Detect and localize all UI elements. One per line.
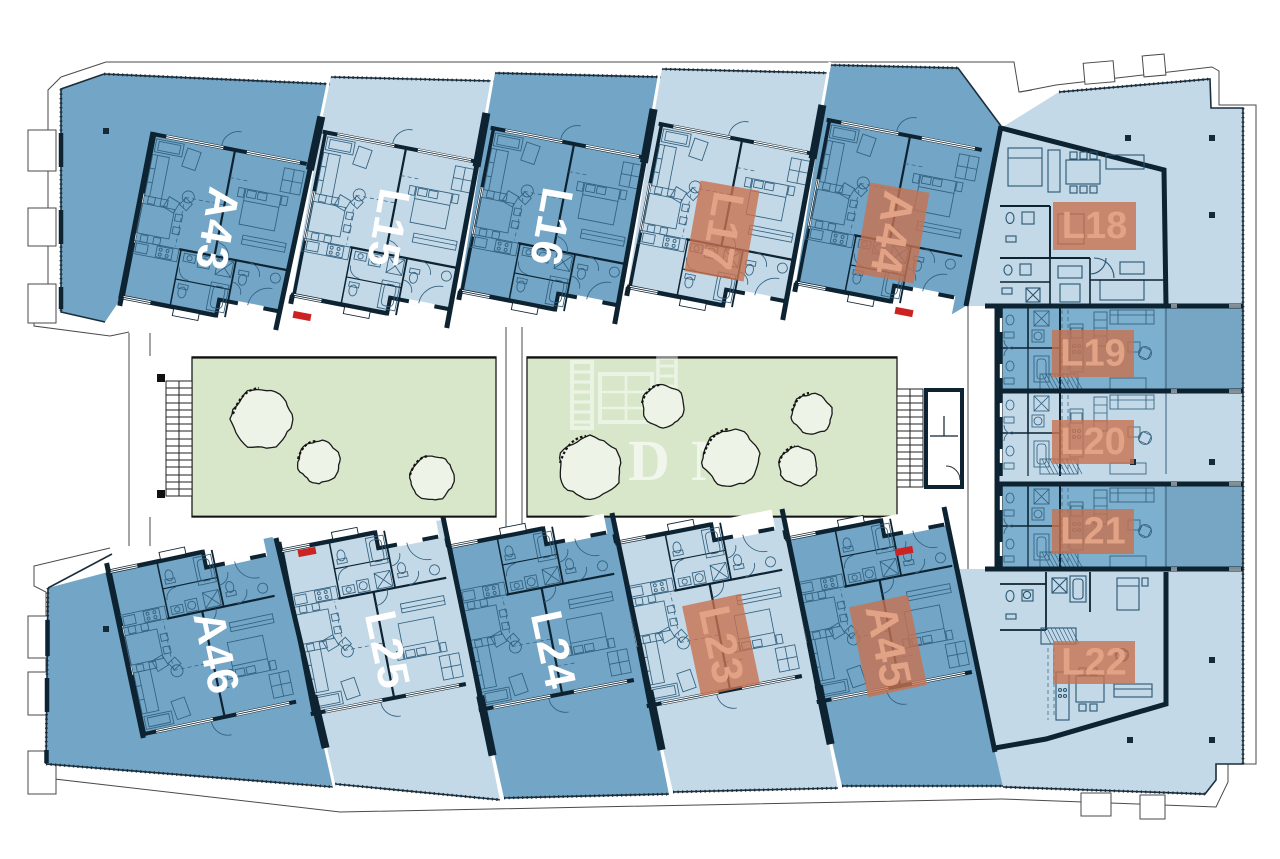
svg-text:D: D: [628, 428, 670, 493]
svg-text:L18: L18: [1062, 205, 1127, 247]
svg-text:L21: L21: [1060, 511, 1125, 553]
svg-text:L19: L19: [1060, 333, 1125, 375]
svg-text:L20: L20: [1060, 421, 1125, 463]
svg-text:L22: L22: [1061, 642, 1126, 684]
